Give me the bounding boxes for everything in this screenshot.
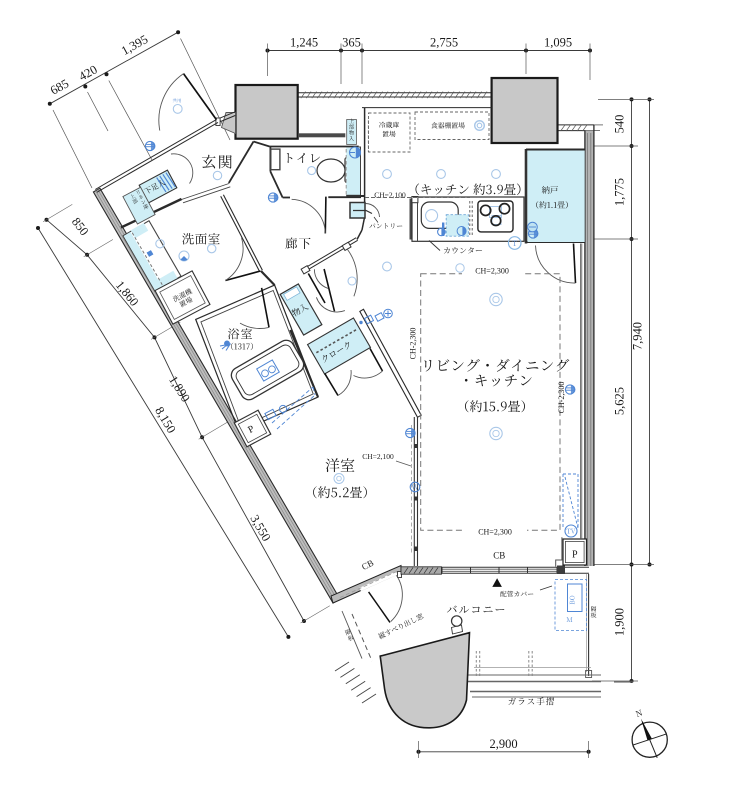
svg-text:CH-2,300: CH-2,300 bbox=[557, 382, 566, 414]
svg-text:850: 850 bbox=[69, 215, 92, 238]
svg-text:1,095: 1,095 bbox=[544, 36, 572, 50]
svg-text:685: 685 bbox=[48, 76, 71, 97]
svg-text:365: 365 bbox=[342, 36, 361, 50]
svg-text:1,860: 1,860 bbox=[113, 278, 142, 309]
svg-text:7,940: 7,940 bbox=[631, 322, 645, 350]
svg-text:CH-2,300: CH-2,300 bbox=[409, 328, 418, 360]
svg-text:540: 540 bbox=[613, 115, 627, 134]
svg-text:1,900: 1,900 bbox=[613, 608, 627, 636]
svg-text:CB: CB bbox=[360, 558, 375, 572]
svg-text:CH=2,100: CH=2,100 bbox=[362, 452, 394, 461]
svg-text:3,550: 3,550 bbox=[247, 512, 273, 543]
svg-text:5,625: 5,625 bbox=[613, 387, 627, 415]
svg-text:1,395: 1,395 bbox=[119, 32, 150, 58]
svg-text:CH=2,300: CH=2,300 bbox=[475, 267, 509, 276]
svg-text:8,150: 8,150 bbox=[152, 404, 178, 435]
svg-text:CH=2,100: CH=2,100 bbox=[374, 191, 406, 200]
svg-text:CB: CB bbox=[493, 551, 505, 561]
svg-text:1,890: 1,890 bbox=[166, 373, 193, 404]
svg-text:2,755: 2,755 bbox=[430, 36, 458, 50]
svg-text:1,775: 1,775 bbox=[613, 178, 627, 206]
svg-text:1,245: 1,245 bbox=[290, 36, 318, 50]
svg-text:P: P bbox=[572, 550, 578, 561]
svg-text:2,900: 2,900 bbox=[489, 737, 517, 751]
svg-text:420: 420 bbox=[76, 62, 99, 83]
svg-text:CH=2,300: CH=2,300 bbox=[478, 528, 512, 537]
